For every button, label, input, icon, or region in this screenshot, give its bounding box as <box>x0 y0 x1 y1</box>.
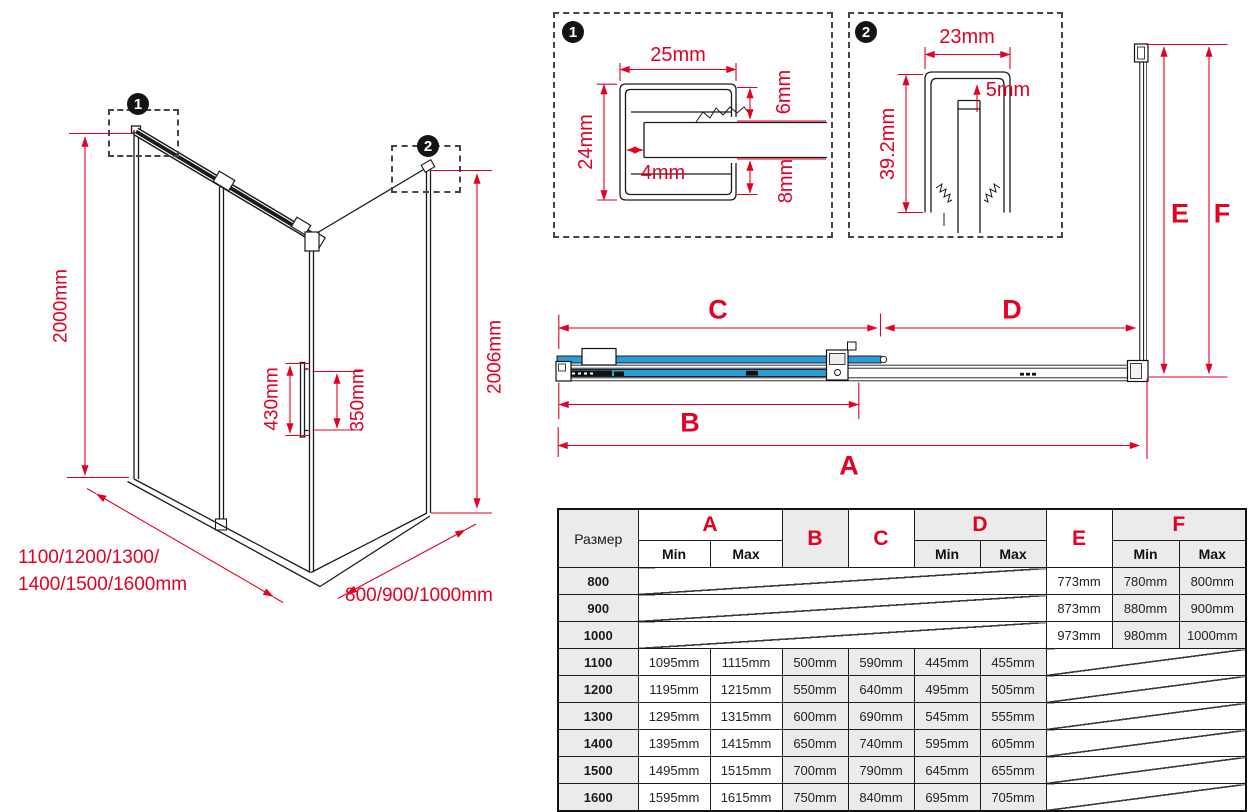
marker-2-icon: 2 <box>417 135 439 157</box>
size-table: РазмерABCDEFMinMaxMinMaxMinMax800773mm78… <box>557 508 1247 812</box>
detail2-height-label: 39.2mm <box>878 108 898 180</box>
handle-inner-dim-label: 350mm <box>349 368 368 431</box>
table-cell: 550mm <box>782 676 848 703</box>
table-cell: 980mm <box>1112 622 1179 649</box>
table-row-label: 1200 <box>558 676 638 703</box>
table-row: 900873mm880mm900mm <box>558 595 1246 622</box>
table-row-label: 1100 <box>558 649 638 676</box>
table-cell: 800mm <box>1179 568 1246 595</box>
table-cell: 705mm <box>980 784 1046 812</box>
plan-dim-e-label: E <box>1171 201 1189 228</box>
table-strike-cell <box>1046 703 1246 730</box>
table-cell: 900mm <box>1179 595 1246 622</box>
marker-2-label: 2 <box>424 138 432 155</box>
detail2-marker-label: 2 <box>862 24 870 41</box>
table-cell: 1195mm <box>638 676 710 703</box>
iso-height-left-label: 2000mm <box>52 269 71 343</box>
table-cell: 973mm <box>1046 622 1112 649</box>
table-strike-cell <box>1046 649 1246 676</box>
size-table-container: РазмерABCDEFMinMaxMinMaxMinMax800773mm78… <box>557 508 1247 812</box>
table-row-label: 1400 <box>558 730 638 757</box>
detail2-width-label: 23mm <box>939 27 995 47</box>
table-strike-cell <box>1046 784 1246 812</box>
detail1-top-gap-label: 6mm <box>774 70 794 114</box>
table-col-header-D: D <box>914 509 1046 541</box>
table-cell: 590mm <box>848 649 914 676</box>
table-row-label: 1600 <box>558 784 638 812</box>
marker-1-icon: 1 <box>127 93 149 115</box>
detail1-marker-icon: 1 <box>562 21 584 43</box>
table-cell: 495mm <box>914 676 980 703</box>
table-subheader-A-Max: Max <box>710 541 782 568</box>
table-subheader-D-Min: Min <box>914 541 980 568</box>
table-col-header-C: C <box>848 509 914 568</box>
table-cell: 1315mm <box>710 703 782 730</box>
table-strike-cell <box>1046 676 1246 703</box>
table-subheader-D-Max: Max <box>980 541 1046 568</box>
table-col-header-B: B <box>782 509 848 568</box>
table-row-label: 1500 <box>558 757 638 784</box>
table-cell: 1395mm <box>638 730 710 757</box>
iso-width-options-line2: 1400/1500/1600mm <box>18 575 187 594</box>
table-cell: 1415mm <box>710 730 782 757</box>
table-cell: 780mm <box>1112 568 1179 595</box>
table-cell: 1515mm <box>710 757 782 784</box>
table-col-header-F: F <box>1112 509 1246 541</box>
iso-enclosure-drawing <box>128 126 435 587</box>
detail1-height-label: 24mm <box>576 114 596 170</box>
table-cell: 1495mm <box>638 757 710 784</box>
table-col-header-A: A <box>638 509 782 541</box>
table-cell: 645mm <box>914 757 980 784</box>
table-cell: 445mm <box>914 649 980 676</box>
table-cell: 700mm <box>782 757 848 784</box>
table-cell: 773mm <box>1046 568 1112 595</box>
plan-dim-a-label: A <box>839 453 859 480</box>
marker-1-label: 1 <box>134 96 142 113</box>
table-strike-cell <box>638 568 1046 595</box>
table-cell: 640mm <box>848 676 914 703</box>
detail1-marker-label: 1 <box>569 24 577 41</box>
table-cell: 650mm <box>782 730 848 757</box>
table-cell: 455mm <box>980 649 1046 676</box>
table-cell: 695mm <box>914 784 980 812</box>
table-subheader-F-Min: Min <box>1112 541 1179 568</box>
table-row-label: 800 <box>558 568 638 595</box>
table-col-header-E: E <box>1046 509 1112 568</box>
table-cell: 500mm <box>782 649 848 676</box>
table-row: 15001495mm1515mm700mm790mm645mm655mm <box>558 757 1246 784</box>
table-cell: 1615mm <box>710 784 782 812</box>
table-row-label: 1300 <box>558 703 638 730</box>
table-row: 14001395mm1415mm650mm740mm595mm605mm <box>558 730 1246 757</box>
table-strike-cell <box>1046 757 1246 784</box>
table-cell: 545mm <box>914 703 980 730</box>
table-cell: 1295mm <box>638 703 710 730</box>
table-cell: 605mm <box>980 730 1046 757</box>
table-row: 13001295mm1315mm600mm690mm545mm555mm <box>558 703 1246 730</box>
table-cell: 750mm <box>782 784 848 812</box>
table-row: 800773mm780mm800mm <box>558 568 1246 595</box>
table-strike-cell <box>638 622 1046 649</box>
table-cell: 1215mm <box>710 676 782 703</box>
table-cell: 600mm <box>782 703 848 730</box>
plan-dim-f-label: F <box>1214 201 1231 228</box>
table-cell: 655mm <box>980 757 1046 784</box>
table-row-label: 1000 <box>558 622 638 649</box>
iso-depth-options-label: 800/900/1000mm <box>345 586 493 605</box>
iso-width-options-line1: 1100/1200/1300/ <box>18 548 159 567</box>
detail1-bottom-gap-label: 8mm <box>776 159 796 203</box>
table-row: 1000973mm980mm1000mm <box>558 622 1246 649</box>
detail1-glass-inset-label: 4mm <box>641 163 685 183</box>
table-cell: 690mm <box>848 703 914 730</box>
detail2-marker-icon: 2 <box>855 21 877 43</box>
table-strike-cell <box>638 595 1046 622</box>
table-cell: 1115mm <box>710 649 782 676</box>
handle-outer-dim-label: 430mm <box>263 367 282 430</box>
table-cell: 790mm <box>848 757 914 784</box>
table-row-label: 900 <box>558 595 638 622</box>
detail2-gap-label: 5mm <box>986 80 1030 100</box>
table-size-header: Размер <box>558 509 638 568</box>
iso-height-right-label: 2006mm <box>486 320 505 394</box>
detail1-callout-box <box>108 109 179 157</box>
table-cell: 1595mm <box>638 784 710 812</box>
plan-dim-d-label: D <box>1002 297 1022 324</box>
table-cell: 880mm <box>1112 595 1179 622</box>
detail1-width-label: 25mm <box>650 45 706 65</box>
table-cell: 1000mm <box>1179 622 1246 649</box>
table-cell: 840mm <box>848 784 914 812</box>
table-row: 16001595mm1615mm750mm840mm695mm705mm <box>558 784 1246 812</box>
table-cell: 595mm <box>914 730 980 757</box>
table-subheader-F-Max: Max <box>1179 541 1246 568</box>
table-strike-cell <box>1046 730 1246 757</box>
plan-dim-c-label: C <box>708 297 728 324</box>
table-cell: 505mm <box>980 676 1046 703</box>
technical-drawing-page: 1 2 1 2 2000mm 2006mm 430mm 350mm 1100/1… <box>0 0 1250 800</box>
plan-dim-b-label: B <box>680 410 700 437</box>
table-cell: 1095mm <box>638 649 710 676</box>
table-cell: 740mm <box>848 730 914 757</box>
table-row: 12001195mm1215mm550mm640mm495mm505mm <box>558 676 1246 703</box>
table-cell: 555mm <box>980 703 1046 730</box>
table-cell: 873mm <box>1046 595 1112 622</box>
table-row: 11001095mm1115mm500mm590mm445mm455mm <box>558 649 1246 676</box>
table-subheader-A-Min: Min <box>638 541 710 568</box>
